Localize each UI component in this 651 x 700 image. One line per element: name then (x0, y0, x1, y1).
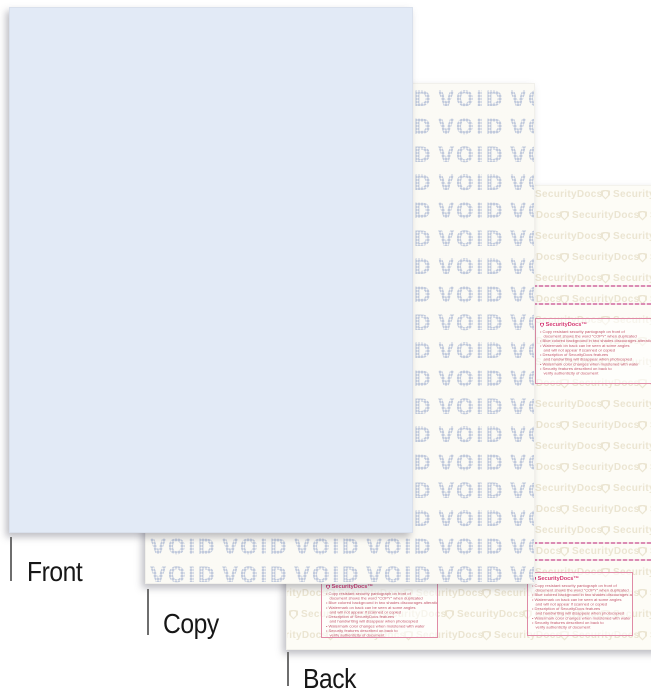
securitydocs-watermark-text: SecurityDocs (572, 420, 640, 431)
void-watermark-word: VOID (510, 479, 535, 503)
security-features-box-title: SecurityDocs™ (538, 576, 579, 582)
shield-icon (638, 547, 647, 557)
shield-icon (638, 505, 647, 515)
security-features-box-header: SecurityDocs™ (532, 576, 628, 582)
security-features-box: SecurityDocs™ • Copy resistant security … (321, 580, 438, 638)
copy-label-tick (147, 589, 149, 635)
void-watermark-word: VOID (438, 255, 505, 279)
shield-icon (326, 584, 330, 589)
security-paper-product-image: SecurityDocsSecurityDocsSecurityDocsSecu… (0, 0, 651, 700)
void-watermark-word: VOID (510, 255, 535, 279)
securitydocs-watermark-text: SecurityDocs (572, 210, 640, 221)
shield-icon (601, 484, 610, 494)
securitydocs-watermark-text: SecurityDocs (535, 483, 603, 494)
securitydocs-watermark-text: SecurityDocs (535, 441, 603, 452)
void-watermark-word: VOID (294, 535, 361, 559)
securitydocs-watermark-item: SecurityDocs (560, 462, 640, 473)
securitydocs-watermark-text: SecurityDocs (613, 231, 651, 242)
void-watermark-word: VOID (222, 535, 289, 559)
security-features-box-title: SecurityDocs™ (332, 584, 373, 590)
void-watermark-word: VOID (510, 311, 535, 335)
void-watermark-word: VOID (510, 199, 535, 223)
securitydocs-watermark-item: SecurityDocs (560, 546, 640, 557)
securitydocs-watermark-item: SecurityDocs (601, 399, 651, 410)
shield-icon (601, 190, 610, 200)
securitydocs-watermark-text: SecurityDocs (535, 273, 603, 284)
void-watermark-word: VOID (438, 283, 505, 307)
void-watermark-word: VOID (438, 143, 505, 167)
securitydocs-watermark-text: SecurityDocs (535, 189, 603, 200)
securitydocs-watermark-text: SecurityDocs (613, 483, 651, 494)
shield-icon (638, 589, 647, 599)
void-watermark-word: VOID (438, 395, 505, 419)
void-watermark-word: VOID (438, 507, 505, 531)
void-watermark-word: VOID (510, 171, 535, 195)
securitydocs-watermark-text: SecurityDocs (613, 441, 651, 452)
security-features-box-lines: • Copy resistant security pantograph on … (540, 330, 651, 377)
securitydocs-watermark-text: SecurityDocs (572, 504, 640, 515)
shield-icon (638, 421, 647, 431)
securitydocs-watermark-text: SecurityDocs (535, 231, 603, 242)
void-watermark-word: VOID (150, 563, 217, 584)
void-watermark-word: VOID (438, 311, 505, 335)
shield-icon (445, 610, 454, 620)
securitydocs-watermark-item: SecurityDocs (638, 504, 651, 515)
void-watermark-word: VOID (438, 227, 505, 251)
void-watermark-word: VOID (510, 507, 535, 531)
securitydocs-watermark-item: SecurityDocs (638, 546, 651, 557)
securitydocs-watermark-text: SecurityDocs (535, 399, 603, 410)
shield-icon (560, 547, 569, 557)
void-watermark-word: VOID (294, 563, 361, 584)
securitydocs-watermark-text: SecurityDocs (572, 462, 640, 473)
void-watermark-word: VOID (510, 563, 535, 584)
void-watermark-word: VOID (510, 87, 535, 111)
shield-icon (560, 505, 569, 515)
securitydocs-watermark-item: SecurityDocs (638, 630, 651, 641)
void-watermark-word: VOID (366, 563, 433, 584)
shield-icon (601, 274, 610, 284)
copy-label: Copy (163, 608, 219, 640)
void-watermark-word: VOID (150, 535, 217, 559)
securitydocs-watermark-text: SecurityDocs (613, 525, 651, 536)
securitydocs-watermark-item: SecurityDocs (601, 273, 651, 284)
security-features-box-header: SecurityDocs™ (540, 322, 651, 328)
void-watermark-word: VOID (510, 367, 535, 391)
shield-icon (560, 421, 569, 431)
securitydocs-watermark-item: SecurityDocs (638, 210, 651, 221)
void-watermark-word: VOID (510, 283, 535, 307)
void-watermark-word: VOID (510, 143, 535, 167)
void-watermark-word: VOID (366, 535, 433, 559)
securitydocs-watermark-item: SecurityDocs (638, 252, 651, 263)
securitydocs-watermark-item: SecurityDocs (638, 588, 651, 599)
void-watermark-word: VOID (438, 87, 505, 111)
void-watermark-word: VOID (510, 227, 535, 251)
front-label: Front (27, 556, 82, 588)
void-watermark-word: VOID (438, 479, 505, 503)
void-watermark-word: VOID (510, 535, 535, 559)
securitydocs-watermark-text: SecurityDocs (613, 189, 651, 200)
shield-icon (482, 589, 491, 599)
shield-icon (601, 400, 610, 410)
security-feature-line: verify authenticity of document (532, 626, 628, 631)
void-watermark-word: VOID (438, 199, 505, 223)
void-watermark-word: VOID (438, 171, 505, 195)
shield-icon (601, 442, 610, 452)
securitydocs-watermark-item: SecurityDocs (560, 504, 640, 515)
void-watermark-word: VOID (438, 451, 505, 475)
security-features-box: SecurityDocs™ • Copy resistant security … (527, 572, 633, 636)
securitydocs-watermark-item: SecurityDocs (560, 252, 640, 263)
void-watermark-word: VOID (438, 535, 505, 559)
securitydocs-watermark-item: SecurityDocs (638, 462, 651, 473)
void-watermark-word: VOID (438, 367, 505, 391)
void-watermark-word: VOID (438, 339, 505, 363)
security-feature-line: verify authenticity of document (326, 634, 433, 638)
front-label-tick (10, 537, 12, 581)
securitydocs-watermark-item: SecurityDocs (601, 441, 651, 452)
void-watermark-word: VOID (510, 339, 535, 363)
security-feature-line: verify authenticity of document (540, 372, 651, 377)
shield-icon (560, 463, 569, 473)
void-watermark-word: VOID (510, 395, 535, 419)
shield-icon (289, 610, 298, 620)
securitydocs-watermark-text: SecurityDocs (613, 399, 651, 410)
securitydocs-watermark-item: SecurityDocs (638, 420, 651, 431)
securitydocs-watermark-item: SecurityDocs (560, 210, 640, 221)
securitydocs-watermark-item: SecurityDocs (601, 483, 651, 494)
securitydocs-watermark-item: SecurityDocs (560, 420, 640, 431)
void-watermark-word: VOID (438, 563, 505, 584)
securitydocs-watermark-item: SecurityDocs (601, 525, 651, 536)
front-sheet (9, 7, 413, 533)
shield-icon (601, 526, 610, 536)
void-watermark-word: VOID (222, 563, 289, 584)
securitydocs-watermark-text: SecurityDocs (535, 525, 603, 536)
shield-icon (560, 211, 569, 221)
securitydocs-watermark-text: SecurityDocs (572, 546, 640, 557)
shield-icon (638, 211, 647, 221)
shield-icon (601, 232, 610, 242)
void-watermark-word: VOID (438, 423, 505, 447)
shield-icon (638, 463, 647, 473)
security-features-box-header: SecurityDocs™ (326, 584, 433, 590)
security-features-box-lines: • Copy resistant security pantograph on … (532, 584, 628, 631)
securitydocs-watermark-item: SecurityDocs (445, 609, 525, 620)
shield-icon (638, 631, 647, 641)
back-label: Back (303, 663, 356, 695)
securitydocs-watermark-text: SecurityDocs (613, 273, 651, 284)
shield-icon (540, 322, 544, 327)
back-label-tick (287, 652, 289, 686)
shield-icon (482, 631, 491, 641)
void-watermark-word: VOID (510, 451, 535, 475)
securitydocs-watermark-item: SecurityDocs (601, 189, 651, 200)
security-features-box-title: SecurityDocs™ (546, 322, 587, 328)
securitydocs-watermark-text: SecurityDocs (572, 252, 640, 263)
security-features-box: SecurityDocs™ • Copy resistant security … (535, 318, 651, 384)
shield-icon (560, 253, 569, 263)
securitydocs-watermark-item: SecurityDocs (601, 231, 651, 242)
void-watermark-word: VOID (510, 115, 535, 139)
shield-icon (638, 253, 647, 263)
security-features-box-lines: • Copy resistant security pantograph on … (326, 592, 433, 638)
void-watermark-word: VOID (510, 423, 535, 447)
void-watermark-word: VOID (438, 115, 505, 139)
securitydocs-watermark-text: SecurityDocs (457, 609, 525, 620)
